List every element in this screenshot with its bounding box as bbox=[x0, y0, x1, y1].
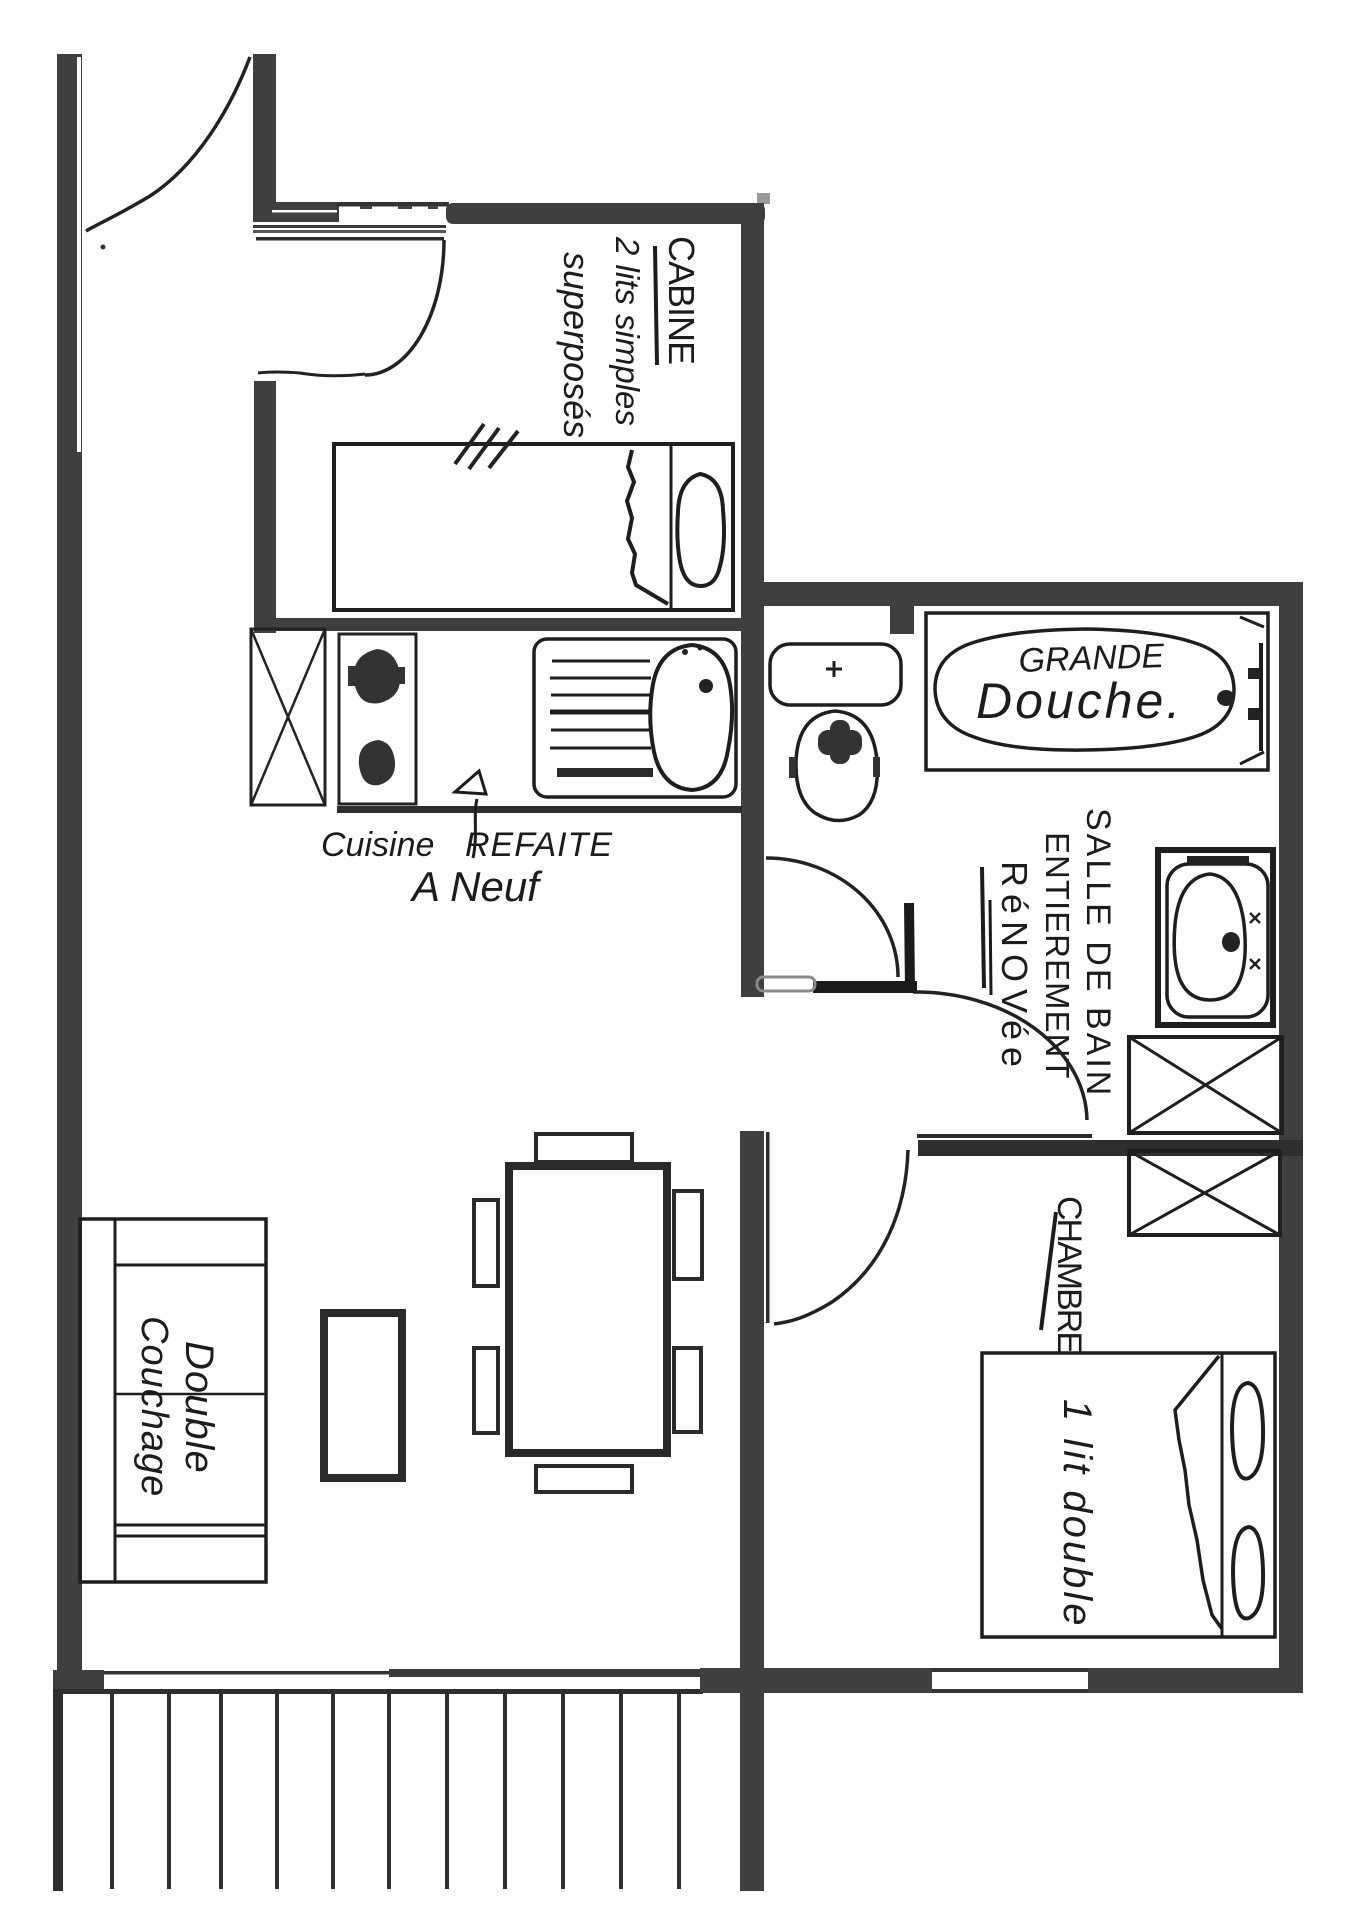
svg-text:Douche.: Douche. bbox=[976, 673, 1183, 729]
svg-text:superposés: superposés bbox=[556, 252, 597, 438]
svg-text:ENTIEREMENT: ENTIEREMENT bbox=[1039, 832, 1076, 1080]
svg-text:REFAITE: REFAITE bbox=[465, 826, 613, 864]
svg-text:CABINE: CABINE bbox=[661, 236, 702, 364]
svg-text:Couchage: Couchage bbox=[133, 1316, 175, 1497]
svg-text:A Neuf: A Neuf bbox=[409, 863, 543, 910]
svg-text:Double: Double bbox=[177, 1341, 221, 1474]
svg-text:Cuisine: Cuisine bbox=[321, 826, 434, 864]
svg-text:SALLE DE BAIN: SALLE DE BAIN bbox=[1079, 808, 1117, 1098]
svg-text:RéNOVée: RéNOVée bbox=[994, 861, 1035, 1074]
svg-text:2 lits simples: 2 lits simples bbox=[609, 236, 646, 426]
svg-text:1 lit double: 1 lit double bbox=[1055, 1399, 1099, 1628]
